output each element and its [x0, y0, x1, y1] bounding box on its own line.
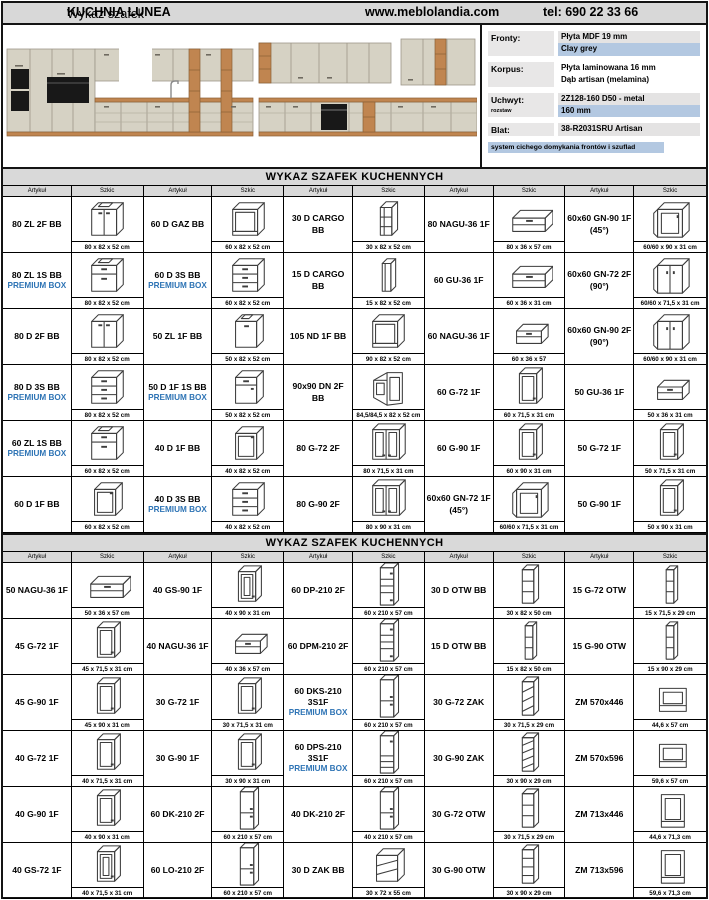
sketch-dimensions: 15 x 82 x 52 cm	[353, 297, 424, 308]
zm-panel-tall-icon	[634, 787, 706, 831]
sketch-cell: 80 x 90 x 31 cm	[353, 477, 425, 533]
premium-box-label: PREMIUM BOX	[148, 505, 207, 516]
sketch-dimensions: 80 x 71,5 x 31 cm	[353, 465, 424, 476]
sink-base-drawer-icon	[72, 421, 143, 465]
sketch-cell: 30 x 71,5 x 29 cm	[494, 675, 566, 731]
article-cell: 40 D 3S BBPREMIUM BOX	[144, 477, 213, 533]
sketch-dimensions: 50 x 82 x 52 cm	[212, 409, 283, 420]
article-code: 60 LO-210 2F	[151, 865, 205, 876]
spec-value: Clay grey	[558, 43, 700, 55]
website-link[interactable]: www.meblolandia.com	[365, 5, 499, 19]
article-code: 80 ZL 2F BB	[12, 219, 62, 230]
article-cell: 60x60 GN-72 1F(45°)	[425, 477, 494, 533]
sink-base-drawer-icon	[72, 253, 143, 297]
article-cell: 60x60 GN-72 2F(90°)	[565, 253, 634, 309]
sketch-dimensions: 60 x 210 x 57 cm	[353, 775, 424, 786]
spec-label: Uchwyt:rozstaw	[488, 93, 554, 118]
spec-row: Blat:38-R2031SRU Artisan	[488, 123, 700, 136]
article-cell: 60x60 GN-90 1F(45°)	[565, 197, 634, 253]
article-cell: 80 ZL 2F BB	[3, 197, 72, 253]
sketch-cell: 60/60 x 71,5 x 31 cm	[494, 477, 566, 533]
zm-panel-short-icon	[634, 731, 706, 775]
page-title-prefix: Wykaz szafek	[67, 7, 144, 21]
sketch-dimensions: 60 x 210 x 57 cm	[212, 887, 283, 898]
premium-box-label: PREMIUM BOX	[289, 764, 348, 775]
premium-box-label: PREMIUM BOX	[8, 449, 67, 460]
article-code-angle: (45°)	[590, 225, 609, 236]
article-code: 30 G-90 ZAK	[433, 753, 484, 764]
column-header-sketch: Szkic	[212, 186, 284, 197]
article-cell: 90x90 DN 2F BB	[284, 365, 353, 421]
article-cell: 30 D CARGO BB	[284, 197, 353, 253]
sketch-cell: 80 x 82 x 52 cm	[72, 309, 144, 365]
article-code: ZM 713x596	[575, 865, 623, 876]
faucet-icon	[171, 81, 178, 98]
article-code: 40 D 1F BB	[155, 443, 200, 454]
article-cell: 60 DKS-210 3S1FPREMIUM BOX	[284, 675, 353, 731]
article-cell: 80 D 3S BBPREMIUM BOX	[3, 365, 72, 421]
column-header-article: Artykuł	[3, 552, 72, 563]
spec-label-text: Korpus:	[491, 64, 551, 74]
open-base-icon	[353, 309, 424, 353]
sketch-dimensions: 40 x 82 x 52 cm	[212, 521, 283, 532]
sketch-dimensions: 50 x 36 x 31 cm	[634, 409, 706, 420]
sketch-dimensions: 40 x 90 x 31 cm	[72, 831, 143, 842]
article-code: ZM 570x446	[575, 697, 623, 708]
article-cell: 30 G-72 1F	[144, 675, 213, 731]
column-header-sketch: Szkic	[353, 186, 425, 197]
glass-wall-1-door-icon	[212, 563, 283, 607]
sketch-dimensions: 44,6 x 71,3 cm	[634, 831, 706, 842]
article-code: 45 G-90 1F	[15, 697, 58, 708]
article-code: 80 G-90 2F	[296, 499, 339, 510]
sketch-cell: 40 x 36 x 57 cm	[212, 619, 284, 675]
sketch-dimensions: 40 x 82 x 52 cm	[212, 465, 283, 476]
article-cell: 105 ND 1F BB	[284, 309, 353, 365]
sketch-dimensions: 30 x 71,5 x 29 cm	[494, 831, 565, 842]
article-cell: 50 ZL 1F BB	[144, 309, 213, 365]
sketch-cell: 30 x 72 x 55 cm	[353, 843, 425, 899]
article-cell: 40 G-90 1F	[3, 787, 72, 843]
sketch-dimensions: 60 x 36 x 57	[494, 353, 565, 364]
sketch-cell: 80 x 36 x 57 cm	[494, 197, 566, 253]
sketch-cell: 44,6 x 71,3 cm	[634, 787, 706, 843]
spec-label: Fronty:	[488, 31, 554, 56]
sketch-cell: 30 x 71,5 x 31 cm	[212, 675, 284, 731]
sketch-dimensions: 60/60 x 90 x 31 cm	[634, 353, 706, 364]
spec-row: Uchwyt:rozstaw2Z128-160 D50 - metal160 m…	[488, 93, 700, 118]
sketch-cell: 15 x 82 x 52 cm	[353, 253, 425, 309]
article-cell: 50 G-72 1F	[565, 421, 634, 477]
column-header-sketch: Szkic	[634, 186, 706, 197]
tall-2-doors-icon	[353, 787, 424, 831]
wall-1-door-icon	[212, 731, 283, 775]
sketch-dimensions: 50 x 90 x 31 cm	[634, 521, 706, 532]
column-header-article: Artykuł	[144, 186, 213, 197]
sketch-dimensions: 60 x 82 x 52 cm	[72, 521, 143, 532]
flip-up-wall-small-icon	[494, 309, 565, 353]
sketch-cell: 50 x 82 x 52 cm	[212, 309, 284, 365]
article-code: 90x90 DN 2F BB	[285, 381, 351, 403]
sketch-dimensions: 60 x 82 x 52 cm	[212, 297, 283, 308]
sketch-dimensions: 84,5/84,5 x 82 x 52 cm	[353, 409, 424, 420]
article-code: 30 G-72 OTW	[432, 809, 485, 820]
catalog-page: Wykaz szafek KUCHNIA LUNEA www.mebloland…	[1, 1, 708, 899]
article-code: 15 D CARGO BB	[285, 269, 351, 291]
article-cell: 50 G-90 1F	[565, 477, 634, 533]
sketch-dimensions: 15 x 90 x 29 cm	[634, 663, 706, 674]
column-header-sketch: Szkic	[494, 552, 566, 563]
sketch-dimensions: 50 x 82 x 52 cm	[212, 353, 283, 364]
sketch-dimensions: 44,6 x 57 cm	[634, 719, 706, 730]
sketch-dimensions: 50 x 36 x 57 cm	[72, 607, 143, 618]
sketch-cell: 80 x 82 x 52 cm	[72, 365, 144, 421]
flip-up-wall-icon	[494, 197, 565, 241]
wall-1-door-icon	[72, 787, 143, 831]
article-code: 60 DPS-210 3S1F	[285, 742, 351, 764]
article-cell: 30 G-72 OTW	[425, 787, 494, 843]
sketch-cell: 59,6 x 57 cm	[634, 731, 706, 787]
spec-label: Korpus:	[488, 62, 554, 87]
article-code: 60 ZL 1S BB	[12, 438, 62, 449]
sketch-cell: 60 x 210 x 57 cm	[353, 619, 425, 675]
sketch-dimensions: 30 x 71,5 x 29 cm	[494, 719, 565, 730]
article-cell: 80 NAGU-36 1F	[425, 197, 494, 253]
spec-value: Płyta laminowana 16 mm	[558, 62, 700, 74]
page-title: Wykaz szafek KUCHNIA LUNEA	[67, 5, 171, 19]
sketch-dimensions: 60 x 210 x 57 cm	[353, 663, 424, 674]
sketch-dimensions: 60 x 82 x 52 cm	[212, 241, 283, 252]
sketch-cell: 30 x 90 x 31 cm	[212, 731, 284, 787]
column-header-article: Artykuł	[565, 552, 634, 563]
article-code: 60 DP-210 2F	[291, 585, 345, 596]
article-code: 80 D 2F BB	[14, 331, 59, 342]
sketch-cell: 60 x 82 x 52 cm	[212, 253, 284, 309]
sketch-cell: 30 x 82 x 52 cm	[353, 197, 425, 253]
corner-wall-1f-icon	[634, 197, 706, 241]
corner-wall-2f-icon	[634, 309, 706, 353]
sketch-dimensions: 60/60 x 71,5 x 31 cm	[634, 297, 706, 308]
sketch-cell: 44,6 x 57 cm	[634, 675, 706, 731]
wall-1-door-icon	[494, 421, 565, 465]
sketch-dimensions: 40 x 71,5 x 31 cm	[72, 887, 143, 898]
zak-shelf-4-icon	[494, 731, 565, 775]
sketch-cell: 84,5/84,5 x 82 x 52 cm	[353, 365, 425, 421]
article-cell: 60 D GAZ BB	[144, 197, 213, 253]
sketch-dimensions: 30 x 90 x 31 cm	[212, 775, 283, 786]
article-code: 50 G-72 1F	[578, 443, 621, 454]
premium-box-label: PREMIUM BOX	[148, 393, 207, 404]
column-header-article: Artykuł	[144, 552, 213, 563]
sketch-cell: 50 x 36 x 57 cm	[72, 563, 144, 619]
article-cell: 60 DK-210 2F	[144, 787, 213, 843]
flip-up-wall-small-icon	[212, 619, 283, 663]
flip-up-wall-icon	[72, 563, 143, 607]
article-cell: ZM 713x596	[565, 843, 634, 899]
wall-1-door-icon	[72, 731, 143, 775]
sketch-cell: 40 x 71,5 x 31 cm	[72, 843, 144, 899]
sketch-cell: 60 x 36 x 57	[494, 309, 566, 365]
sketch-cell: 40 x 90 x 31 cm	[212, 563, 284, 619]
sketch-cell: 15 x 82 x 50 cm	[494, 619, 566, 675]
article-cell: 30 D ZAK BB	[284, 843, 353, 899]
spec-row: Fronty:Płyta MDF 19 mmClay grey	[488, 31, 700, 56]
zm-panel-short-icon	[634, 675, 706, 719]
sketch-dimensions: 60 x 210 x 57 cm	[353, 607, 424, 618]
article-code: 50 GU-36 1F	[574, 387, 624, 398]
sketch-cell: 40 x 90 x 31 cm	[72, 787, 144, 843]
article-cell: 30 D OTW BB	[425, 563, 494, 619]
sketch-dimensions: 80 x 36 x 57 cm	[494, 241, 565, 252]
sketch-cell: 50 x 71,5 x 31 cm	[634, 421, 706, 477]
article-cell: 40 G-72 1F	[3, 731, 72, 787]
article-code: 45 G-72 1F	[15, 641, 58, 652]
base-1-door-icon	[212, 421, 283, 465]
article-code: 60 G-72 1F	[437, 387, 480, 398]
open-shelf-narrow-icon	[634, 619, 706, 663]
sketch-cell: 50 x 36 x 31 cm	[634, 365, 706, 421]
cargo-icon	[353, 197, 424, 241]
kitchen-rendering	[3, 25, 480, 167]
flip-up-wall-small-icon	[634, 365, 706, 409]
sketch-cell: 60 x 82 x 52 cm	[72, 477, 144, 533]
open-shelf-narrow-icon	[494, 619, 565, 663]
sketch-cell: 60 x 210 x 57 cm	[353, 675, 425, 731]
article-cell: 60 NAGU-36 1F	[425, 309, 494, 365]
base-1-door-icon	[72, 477, 143, 521]
article-code: 30 D OTW BB	[431, 585, 486, 596]
sketch-dimensions: 30 x 90 x 29 cm	[494, 887, 565, 898]
premium-box-label: PREMIUM BOX	[148, 281, 207, 292]
article-cell: 50 NAGU-36 1F	[3, 563, 72, 619]
article-code: 30 G-72 1F	[156, 697, 199, 708]
article-code: 80 ZL 1S BB	[12, 270, 62, 281]
sketch-cell: 80 x 82 x 52 cm	[72, 253, 144, 309]
article-cell: 15 D OTW BB	[425, 619, 494, 675]
column-header-sketch: Szkic	[72, 552, 144, 563]
article-cell: 60 DP-210 2F	[284, 563, 353, 619]
zm-panel-tall-icon	[634, 843, 706, 887]
article-cell: 30 G-90 1F	[144, 731, 213, 787]
article-code: 60 NAGU-36 1F	[428, 331, 490, 342]
sketch-dimensions: 80 x 82 x 52 cm	[72, 353, 143, 364]
column-header-article: Artykuł	[425, 186, 494, 197]
wall-1-door-icon	[212, 675, 283, 719]
article-code: ZM 570x596	[575, 753, 623, 764]
sketch-cell: 60 x 82 x 52 cm	[72, 421, 144, 477]
spec-value: 160 mm	[558, 105, 700, 117]
column-header-sketch: Szkic	[353, 552, 425, 563]
sketch-cell: 30 x 90 x 29 cm	[494, 731, 566, 787]
zak-shelf-icon	[494, 675, 565, 719]
spec-values: Płyta MDF 19 mmClay grey	[558, 31, 700, 56]
sketch-dimensions: 59,6 x 71,3 cm	[634, 887, 706, 898]
article-code: 15 D OTW BB	[431, 641, 486, 652]
sketch-cell: 60 x 82 x 52 cm	[212, 197, 284, 253]
article-cell: 40 GS-90 1F	[144, 563, 213, 619]
article-code: 80 G-72 2F	[296, 443, 339, 454]
section-title: WYKAZ SZAFEK KUCHENNYCH	[3, 169, 706, 186]
sketch-dimensions: 30 x 71,5 x 31 cm	[212, 719, 283, 730]
column-header-article: Artykuł	[425, 552, 494, 563]
spec-values: 2Z128-160 D50 - metal160 mm	[558, 93, 700, 118]
article-cell: 45 G-72 1F	[3, 619, 72, 675]
sketch-cell: 40 x 210 x 57 cm	[353, 787, 425, 843]
article-cell: 60 G-90 1F	[425, 421, 494, 477]
sketch-dimensions: 30 x 72 x 55 cm	[353, 887, 424, 898]
wall-1-door-icon	[634, 477, 706, 521]
cabinet-tables: WYKAZ SZAFEK KUCHENNYCHArtykułSzkicArtyk…	[3, 167, 706, 899]
sketch-cell: 90 x 82 x 52 cm	[353, 309, 425, 365]
zak-base-icon	[353, 843, 424, 887]
tall-shelf-icon	[353, 619, 424, 663]
article-code: 40 D 3S BB	[155, 494, 201, 505]
sketch-dimensions: 60 x 90 x 31 cm	[494, 465, 565, 476]
drawer-door-base-icon	[212, 365, 283, 409]
sketch-dimensions: 60 x 210 x 57 cm	[212, 831, 283, 842]
phone-link[interactable]: tel: 690 22 33 66	[543, 5, 638, 19]
sketch-cell: 40 x 82 x 52 cm	[212, 421, 284, 477]
glass-wall-1-door-icon	[72, 843, 143, 887]
sketch-cell: 15 x 90 x 29 cm	[634, 619, 706, 675]
sketch-cell: 30 x 71,5 x 29 cm	[494, 787, 566, 843]
wall-1-door-icon	[72, 675, 143, 719]
article-cell: 50 D 1F 1S BBPREMIUM BOX	[144, 365, 213, 421]
article-code-angle: (90°)	[590, 337, 609, 348]
article-code: 60 DPM-210 2F	[288, 641, 349, 652]
spec-values: Płyta laminowana 16 mmDąb artisan (melam…	[558, 62, 700, 87]
open-shelf-4-icon	[494, 843, 565, 887]
drawer-base-3-icon	[212, 253, 283, 297]
article-code: 60 D 1F BB	[14, 499, 59, 510]
corner-base-icon	[353, 365, 424, 409]
article-cell: 60 D 1F BB	[3, 477, 72, 533]
wall-1-door-icon	[72, 619, 143, 663]
article-code: 30 G-90 OTW	[432, 865, 485, 876]
article-code: 60 D GAZ BB	[151, 219, 204, 230]
column-header-sketch: Szkic	[634, 552, 706, 563]
sketch-cell: 60/60 x 71,5 x 31 cm	[634, 253, 706, 309]
article-cell: 60 ZL 1S BBPREMIUM BOX	[3, 421, 72, 477]
page-header: Wykaz szafek KUCHNIA LUNEA www.mebloland…	[3, 3, 706, 25]
article-code: 30 D CARGO BB	[285, 213, 351, 235]
sketch-dimensions: 15 x 82 x 50 cm	[494, 663, 565, 674]
article-code: 80 D 3S BB	[14, 382, 60, 393]
sketch-dimensions: 40 x 90 x 31 cm	[212, 607, 283, 618]
sketch-dimensions: 60/60 x 71,5 x 31 cm	[494, 521, 565, 532]
article-cell: 60 LO-210 2F	[144, 843, 213, 899]
article-cell: 15 D CARGO BB	[284, 253, 353, 309]
tall-2-doors-icon	[353, 675, 424, 719]
sketch-cell: 60 x 36 x 31 cm	[494, 253, 566, 309]
spec-value: Dąb artisan (melamina)	[558, 74, 700, 86]
wall-2-doors-icon	[353, 421, 424, 465]
wall-1-door-icon	[494, 365, 565, 409]
tall-shelf-icon	[353, 563, 424, 607]
article-code: 40 NAGU-36 1F	[146, 641, 208, 652]
article-code: 15 G-90 OTW	[573, 641, 626, 652]
article-code: 60 GU-36 1F	[434, 275, 484, 286]
tall-2-doors-icon	[212, 787, 283, 831]
corner-wall-2f-icon	[634, 253, 706, 297]
sketch-cell: 60/60 x 90 x 31 cm	[634, 197, 706, 253]
article-cell: 50 GU-36 1F	[565, 365, 634, 421]
article-code: 60x60 GN-72 2F	[567, 269, 631, 280]
sketch-cell: 80 x 71,5 x 31 cm	[353, 421, 425, 477]
sketch-dimensions: 59,6 x 57 cm	[634, 775, 706, 786]
premium-box-label: PREMIUM BOX	[289, 708, 348, 719]
spec-label: Blat:	[488, 123, 554, 136]
sketch-dimensions: 40 x 36 x 57 cm	[212, 663, 283, 674]
sketch-dimensions: 80 x 90 x 31 cm	[353, 521, 424, 532]
column-header-article: Artykuł	[565, 186, 634, 197]
sketch-dimensions: 50 x 71,5 x 31 cm	[634, 465, 706, 476]
kitchen-rendering-image	[3, 25, 477, 165]
article-code: 60x60 GN-90 1F	[567, 213, 631, 224]
article-code: 60 G-90 1F	[437, 443, 480, 454]
spec-value: 38-R2031SRU Artisan	[558, 123, 700, 135]
sketch-cell: 30 x 82 x 50 cm	[494, 563, 566, 619]
flip-up-wall-icon	[494, 253, 565, 297]
spec-value: 2Z128-160 D50 - metal	[558, 93, 700, 105]
article-cell: 60 DPM-210 2F	[284, 619, 353, 675]
column-header-article: Artykuł	[284, 186, 353, 197]
spec-value: Płyta MDF 19 mm	[558, 31, 700, 43]
article-cell: 15 G-90 OTW	[565, 619, 634, 675]
sketch-dimensions: 30 x 82 x 50 cm	[494, 607, 565, 618]
article-code: 60x60 GN-90 2F	[567, 325, 631, 336]
article-code: 50 G-90 1F	[578, 499, 621, 510]
article-code: 60 DKS-210 3S1F	[285, 686, 351, 708]
article-cell: 30 G-72 ZAK	[425, 675, 494, 731]
sketch-cell: 50 x 90 x 31 cm	[634, 477, 706, 533]
sketch-dimensions: 40 x 210 x 57 cm	[353, 831, 424, 842]
open-shelf-narrow-icon	[634, 563, 706, 607]
corner-wall-1f-icon	[494, 477, 565, 521]
article-cell: ZM 570x446	[565, 675, 634, 731]
article-code: 40 G-72 1F	[15, 753, 58, 764]
sketch-cell: 60 x 210 x 57 cm	[353, 563, 425, 619]
article-cell: 40 D 1F BB	[144, 421, 213, 477]
article-code: 40 DK-210 2F	[291, 809, 345, 820]
article-cell: 60 DPS-210 3S1FPREMIUM BOX	[284, 731, 353, 787]
cabinet-grid: ArtykułSzkicArtykułSzkicArtykułSzkicArty…	[3, 186, 706, 533]
cabinet-section: WYKAZ SZAFEK KUCHENNYCHArtykułSzkicArtyk…	[3, 533, 706, 899]
sketch-dimensions: 80 x 82 x 52 cm	[72, 409, 143, 420]
sketch-cell: 40 x 71,5 x 31 cm	[72, 731, 144, 787]
article-cell: 60x60 GN-90 2F(90°)	[565, 309, 634, 365]
sketch-cell: 60 x 71,5 x 31 cm	[494, 365, 566, 421]
article-code: 50 ZL 1F BB	[153, 331, 203, 342]
article-cell: 80 G-72 2F	[284, 421, 353, 477]
premium-box-label: PREMIUM BOX	[8, 281, 67, 292]
sketch-cell: 60 x 210 x 57 cm	[353, 731, 425, 787]
article-code: 50 D 1F 1S BB	[148, 382, 206, 393]
sketch-cell: 60 x 210 x 57 cm	[212, 787, 284, 843]
sketch-cell: 60 x 210 x 57 cm	[212, 843, 284, 899]
article-code: 30 G-90 1F	[156, 753, 199, 764]
sketch-dimensions: 45 x 90 x 31 cm	[72, 719, 143, 730]
article-cell: 30 G-90 ZAK	[425, 731, 494, 787]
sketch-dimensions: 60 x 82 x 52 cm	[72, 465, 143, 476]
sketch-cell: 60 x 90 x 31 cm	[494, 421, 566, 477]
article-code: 50 NAGU-36 1F	[6, 585, 68, 596]
article-code-angle: (90°)	[590, 281, 609, 292]
spec-label-text: Fronty:	[491, 33, 551, 43]
cargo-narrow-icon	[353, 253, 424, 297]
article-cell: 40 GS-72 1F	[3, 843, 72, 899]
sketch-dimensions: 30 x 90 x 29 cm	[494, 775, 565, 786]
